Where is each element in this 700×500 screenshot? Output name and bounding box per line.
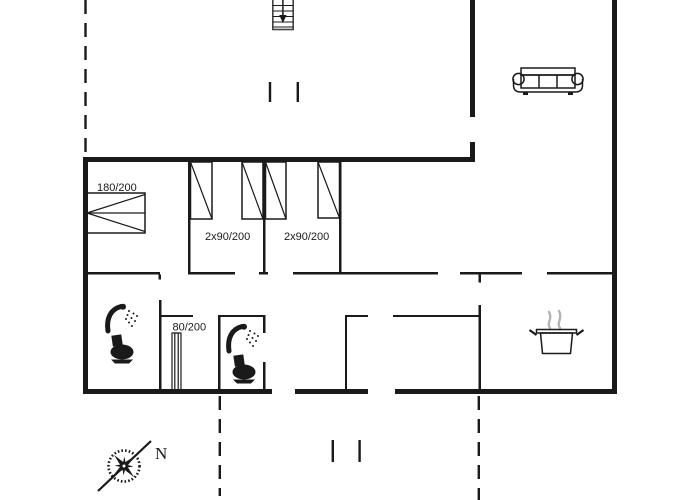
compass-north-label: N [155,444,167,463]
bathroom2-right-wall-b [263,362,266,391]
hall-wall-seg4 [293,272,438,275]
bed-twin-right-label: 2x90/200 [284,231,329,243]
single-bed-symbol-3 [266,162,287,219]
compass-rose-icon [98,441,151,491]
interior-walls [83,162,613,393]
hall-wall-seg6 [547,272,613,275]
toilet-icon [111,334,134,363]
double-bed-symbol [87,193,145,233]
bathroom2-left-wall [218,315,221,391]
wall-bottom-3 [395,389,617,394]
niche-top-wall [160,315,193,317]
bathroom2-top-wall [218,315,265,317]
narrow-bed-80-symbol [172,333,181,393]
bed-single-label: 80/200 [173,322,207,334]
bed-twin-left-label: 2x90/200 [205,231,250,243]
midroom-top-stub [345,315,368,317]
single-bed-symbol-1 [191,162,213,219]
bathroom2-right-wall-a [263,315,266,333]
upper-post-bars [269,82,299,102]
wall-bottom-2 [295,389,368,394]
floor-plan: 180/200 2x90/200 2x90/200 80/200 [0,0,700,500]
single-bed-symbol-4 [318,162,340,218]
hall-wall-tick2 [479,275,482,283]
bed-double-label: 180/200 [97,182,137,194]
cooking-pot-icon [530,311,584,354]
stairs-icon [273,0,293,30]
toilet-icon [233,354,256,383]
wall-livingroom-left-lower [470,142,475,162]
hall-wall-seg2 [188,272,235,275]
bathroom1-right-wall [159,300,162,391]
wall-right [612,0,617,394]
hall-wall-tick1 [159,275,162,280]
midroom-left-wall [345,317,347,389]
dashed-outlines [86,0,479,500]
exterior-walls [83,0,617,394]
midroom-top-wall [393,315,481,317]
shower-icon [108,304,138,331]
single-bed-symbol-2 [242,162,263,219]
floor-plan-drawing: 180/200 2x90/200 2x90/200 80/200 [0,0,700,500]
wall-livingroom-left-upper [470,0,475,117]
midroom-right-wall [479,305,482,393]
hall-wall-seg5 [460,272,522,275]
shower-icon [229,324,259,351]
sofa-icon [513,68,583,95]
terrace-post-bars [332,440,361,462]
hall-wall-seg1 [83,272,160,275]
